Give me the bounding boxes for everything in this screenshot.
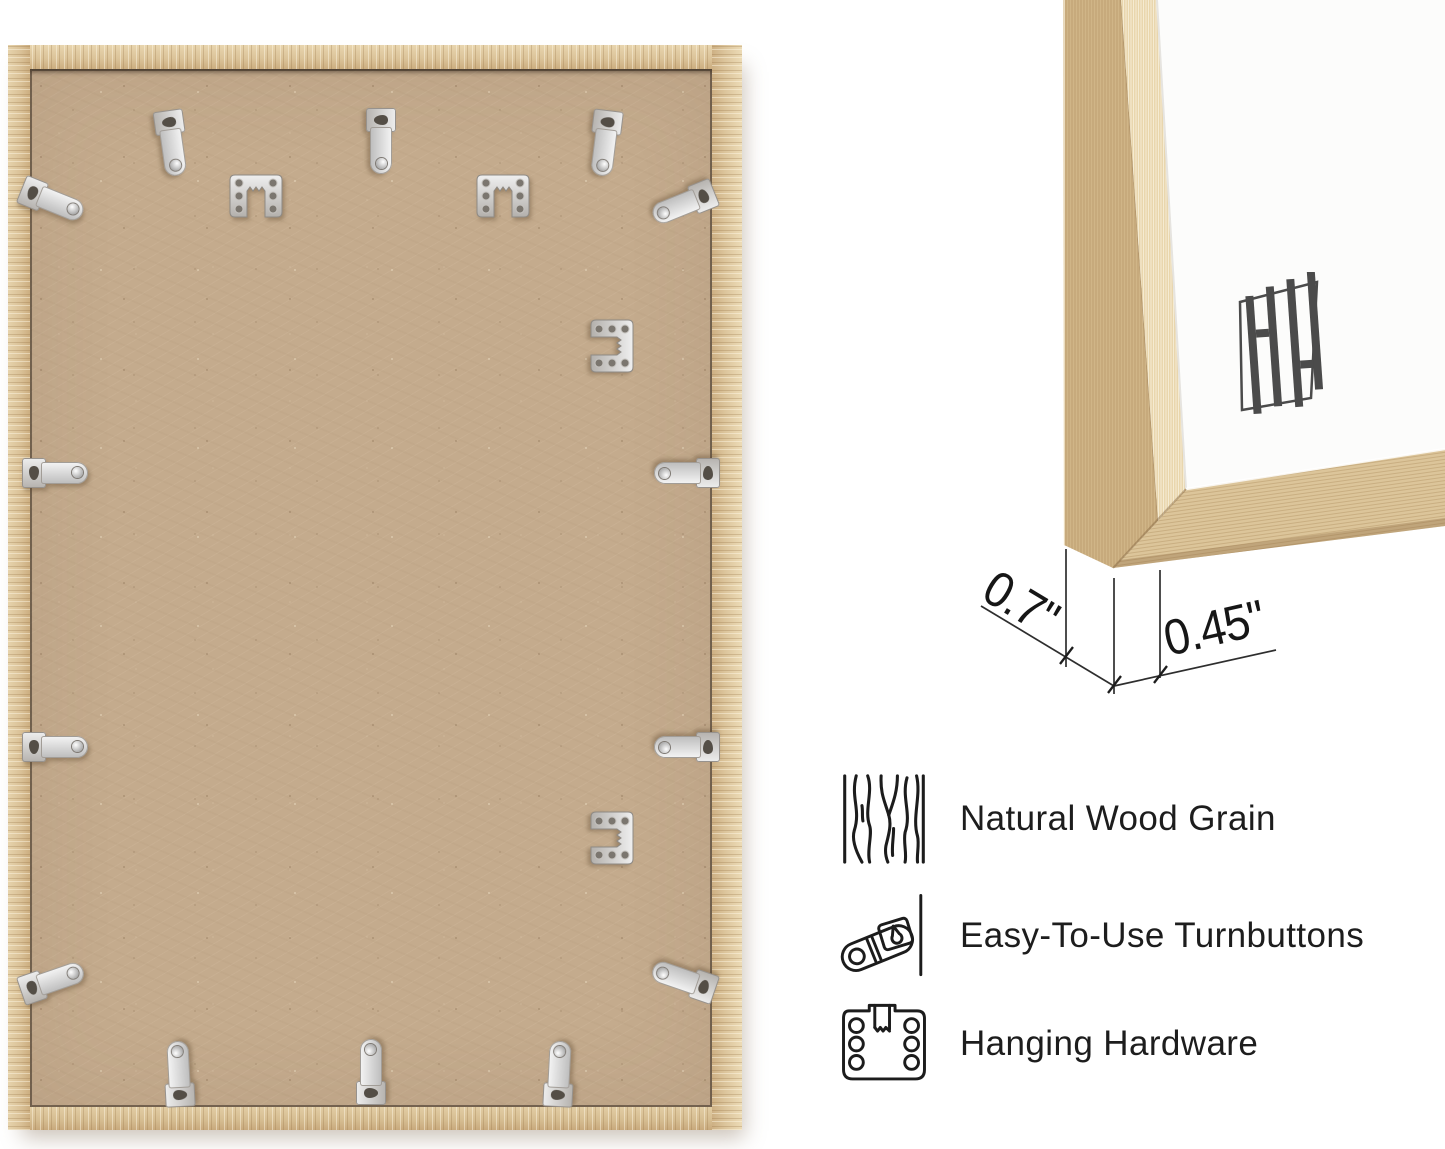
turnbutton-icon xyxy=(838,890,930,982)
turnbutton-icon xyxy=(654,731,720,763)
feature-label: Natural Wood Grain xyxy=(960,799,1276,839)
hanging-hardware-icon xyxy=(475,173,531,219)
feature-row-turnbuttons: Easy-To-Use Turnbuttons xyxy=(838,890,1364,982)
hh-monogram-icon xyxy=(1237,272,1323,422)
hanging-hardware-icon xyxy=(228,173,284,219)
turnbutton-icon xyxy=(365,108,397,174)
turnbutton-icon xyxy=(654,457,720,489)
frame-rail-top xyxy=(8,45,742,69)
feature-label: Easy-To-Use Turnbuttons xyxy=(960,916,1364,956)
turnbutton-icon xyxy=(22,731,88,763)
product-infographic: 0.7" 0.45" Natural Wood Grain xyxy=(0,0,1445,1149)
turnbutton-icon xyxy=(541,1040,576,1108)
hanging-hardware-icon xyxy=(589,318,635,374)
frame-back-photo xyxy=(8,45,742,1130)
mdf-backing-board xyxy=(30,69,712,1107)
feature-label: Hanging Hardware xyxy=(960,1024,1258,1064)
turnbutton-icon xyxy=(355,1039,387,1105)
turnbutton-icon xyxy=(22,457,88,489)
feature-row-wood-grain: Natural Wood Grain xyxy=(838,773,1276,865)
frame-rail-bottom xyxy=(8,1107,742,1130)
hanging-hardware-icon xyxy=(589,810,635,866)
hanging-hardware-icon xyxy=(838,998,930,1090)
wood-grain-icon xyxy=(838,773,930,865)
turnbutton-icon xyxy=(161,1040,196,1108)
feature-row-hanging-hardware: Hanging Hardware xyxy=(838,998,1258,1090)
